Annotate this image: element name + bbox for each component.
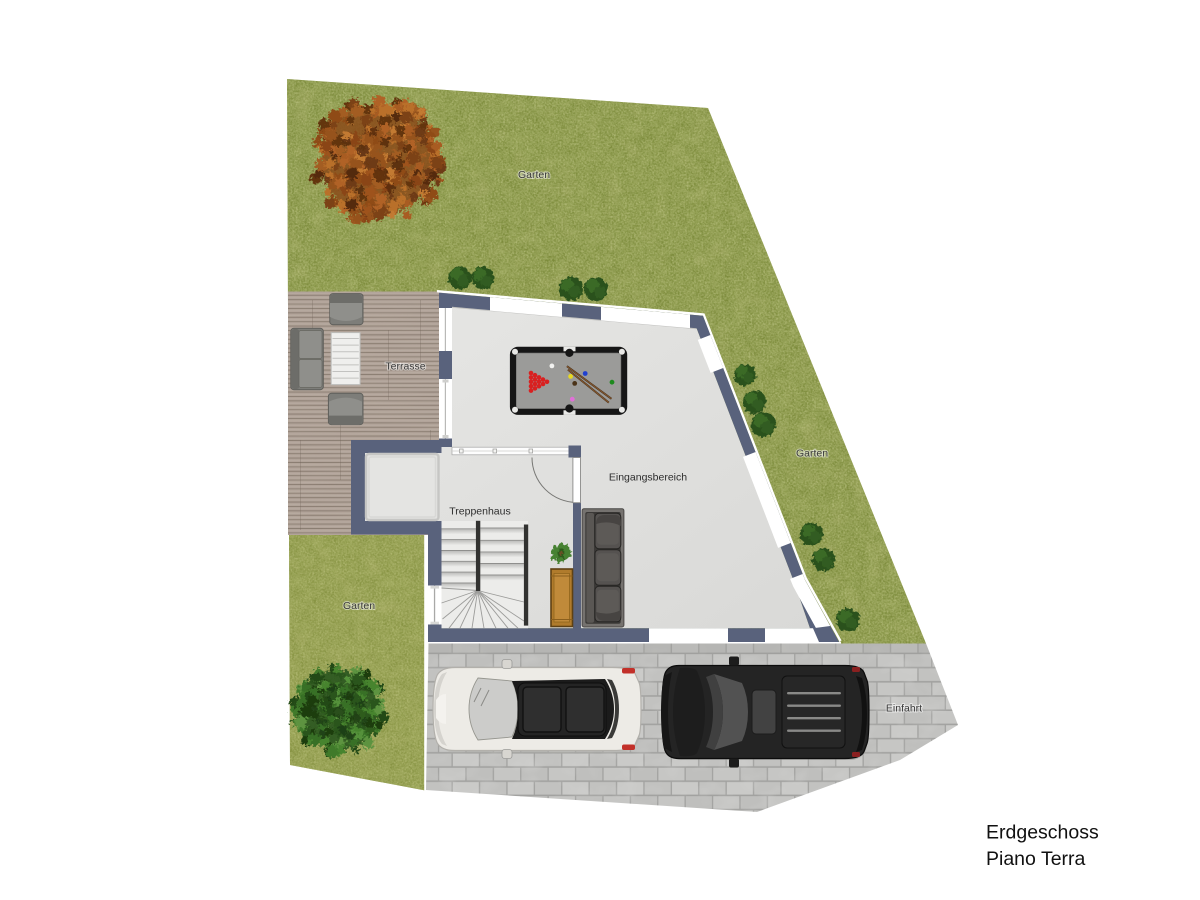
svg-text:Erdgeschoss: Erdgeschoss xyxy=(986,822,1099,844)
svg-text:Eingangsbereich: Eingangsbereich xyxy=(609,472,687,484)
svg-text:Garten: Garten xyxy=(518,169,550,181)
svg-text:Einfahrt: Einfahrt xyxy=(886,703,922,715)
svg-text:Garten: Garten xyxy=(343,600,375,612)
svg-text:Treppenhaus: Treppenhaus xyxy=(449,506,511,518)
svg-text:Garten: Garten xyxy=(796,448,828,460)
svg-text:Terrasse: Terrasse xyxy=(385,361,425,373)
svg-text:Piano Terra: Piano Terra xyxy=(986,848,1086,870)
